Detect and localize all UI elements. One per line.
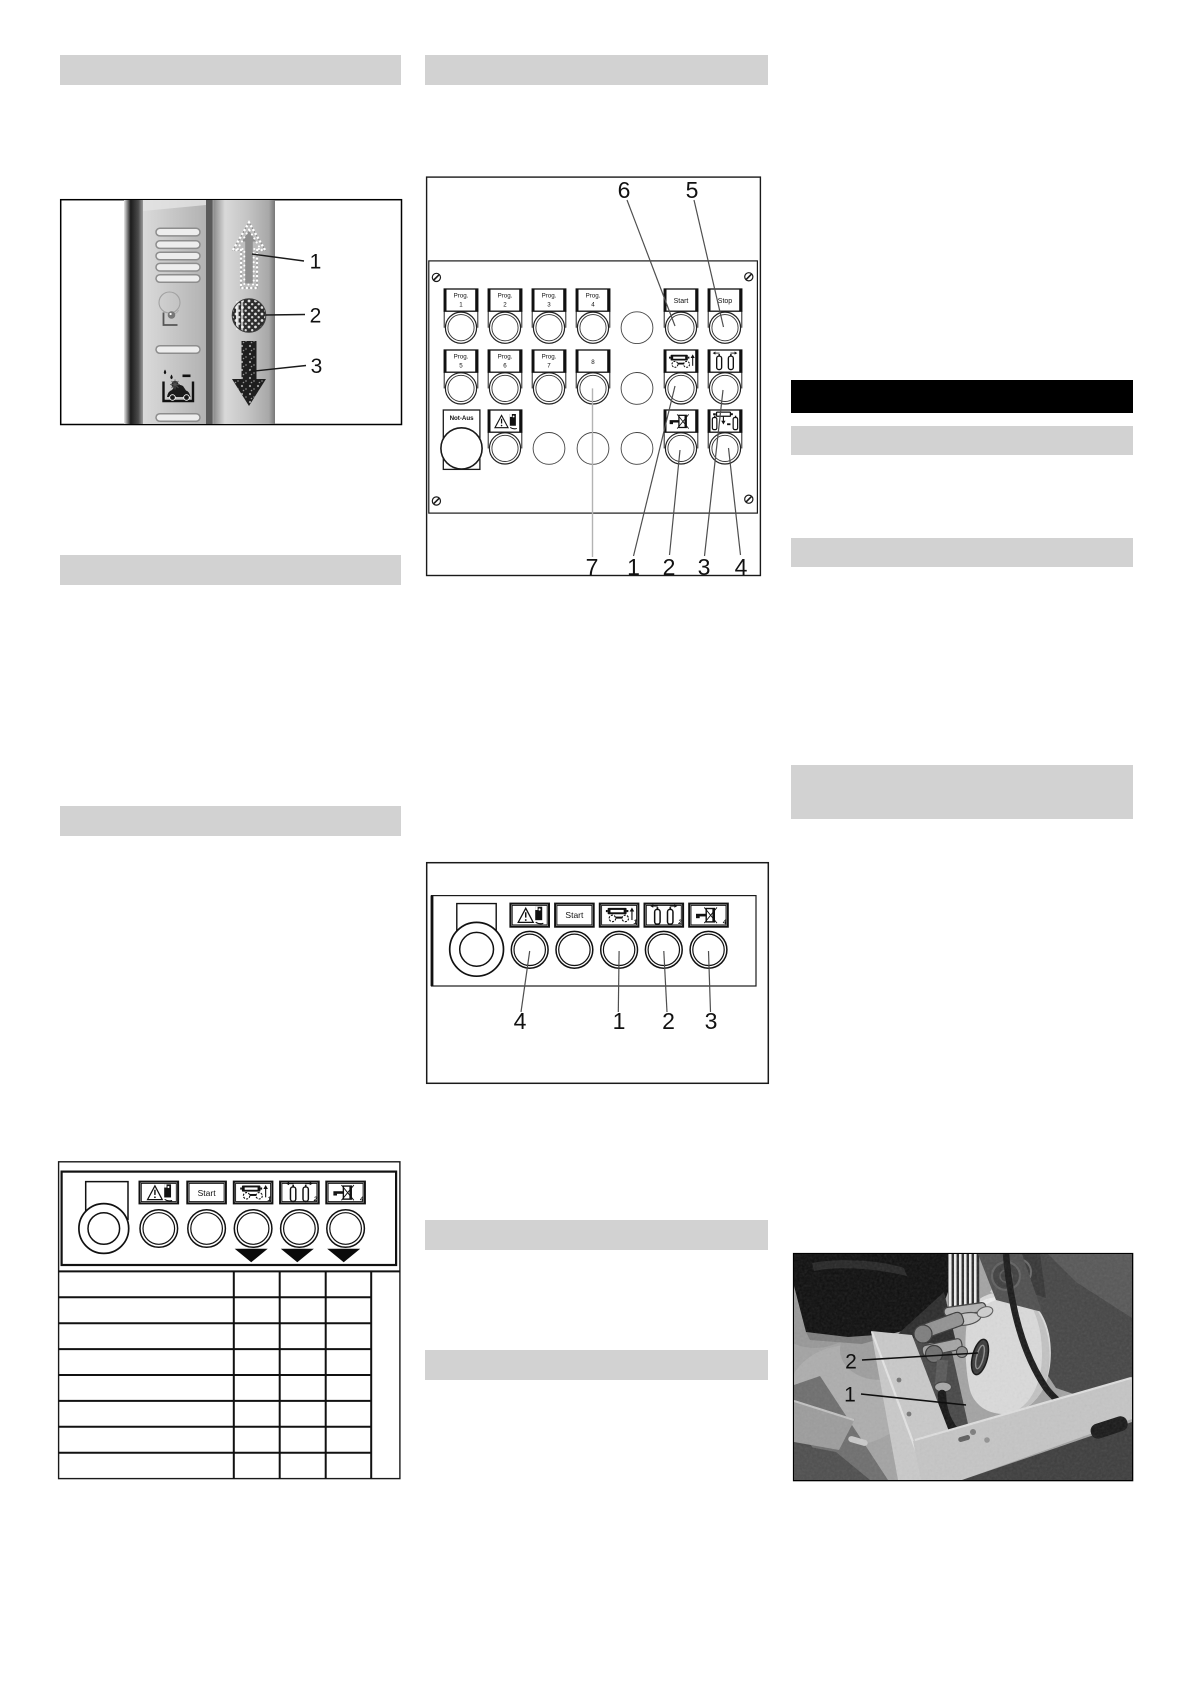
svg-text:2: 2 bbox=[310, 305, 322, 328]
svg-text:Stop: Stop bbox=[718, 298, 733, 305]
svg-text:1: 1 bbox=[844, 1384, 856, 1407]
svg-text:2: 2 bbox=[677, 919, 682, 926]
svg-text:2: 2 bbox=[662, 1008, 675, 1034]
svg-text:4: 4 bbox=[735, 554, 748, 580]
svg-text:Not-Aus: Not-Aus bbox=[450, 415, 475, 422]
svg-text:6: 6 bbox=[618, 177, 631, 203]
svg-text:4: 4 bbox=[722, 919, 727, 926]
svg-text:1: 1 bbox=[613, 1008, 626, 1034]
svg-text:7: 7 bbox=[547, 362, 551, 369]
svg-text:2: 2 bbox=[845, 1351, 857, 1374]
svg-text:5: 5 bbox=[459, 362, 463, 369]
svg-text:Start: Start bbox=[565, 910, 584, 920]
svg-text:3: 3 bbox=[705, 1008, 718, 1034]
svg-text:2: 2 bbox=[313, 1196, 318, 1203]
svg-text:4: 4 bbox=[514, 1008, 527, 1034]
svg-text:Start: Start bbox=[198, 1188, 217, 1198]
svg-text:7: 7 bbox=[586, 554, 599, 580]
svg-text:4: 4 bbox=[359, 1196, 364, 1203]
svg-text:Prog.: Prog. bbox=[454, 292, 469, 299]
svg-text:3: 3 bbox=[547, 301, 551, 308]
svg-text:Prog.: Prog. bbox=[586, 292, 601, 299]
svg-text:5: 5 bbox=[686, 177, 699, 203]
svg-text:1: 1 bbox=[633, 919, 637, 926]
svg-text:1: 1 bbox=[459, 301, 463, 308]
svg-text:Prog.: Prog. bbox=[454, 353, 469, 360]
svg-text:6: 6 bbox=[503, 362, 507, 369]
svg-text:8: 8 bbox=[591, 359, 595, 366]
svg-text:3: 3 bbox=[698, 554, 711, 580]
svg-text:2: 2 bbox=[503, 301, 507, 308]
svg-text:4: 4 bbox=[591, 301, 595, 308]
svg-text:Start: Start bbox=[674, 298, 689, 305]
svg-text:2: 2 bbox=[663, 554, 676, 580]
svg-text:1: 1 bbox=[267, 1196, 271, 1203]
svg-text:Prog.: Prog. bbox=[498, 292, 513, 299]
svg-text:1: 1 bbox=[310, 251, 322, 274]
svg-text:1: 1 bbox=[627, 554, 640, 580]
svg-text:Prog.: Prog. bbox=[542, 292, 557, 299]
svg-text:3: 3 bbox=[311, 355, 323, 378]
svg-text:Prog.: Prog. bbox=[498, 353, 513, 360]
svg-text:Prog.: Prog. bbox=[542, 353, 557, 360]
